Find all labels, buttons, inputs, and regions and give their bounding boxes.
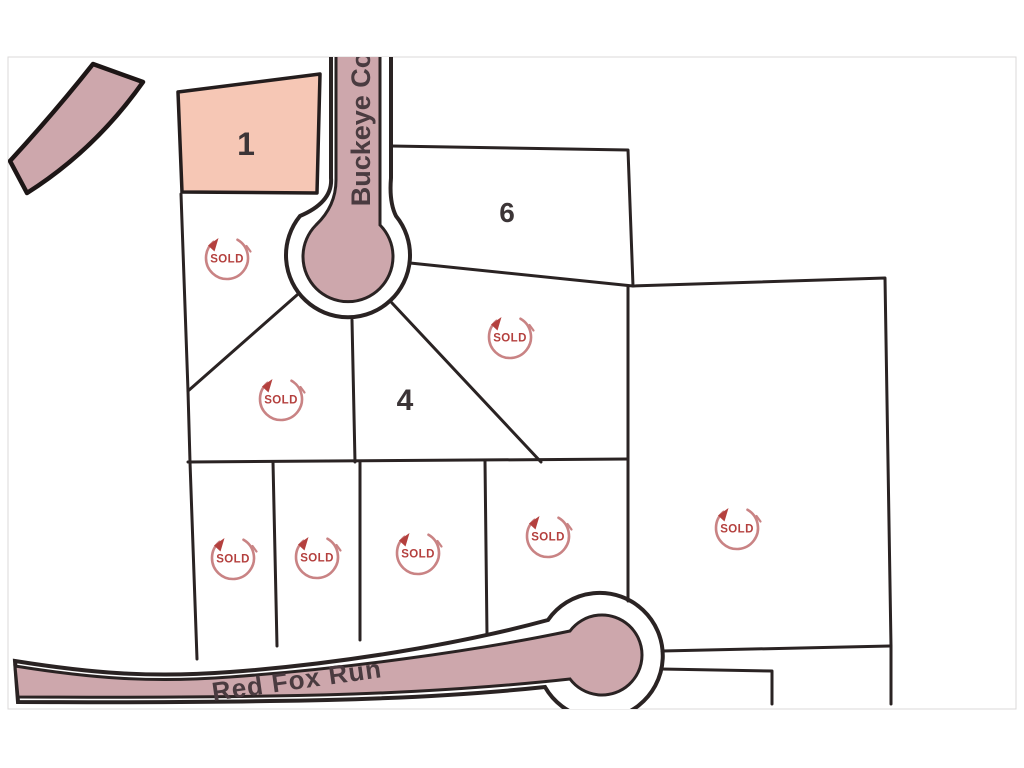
photo-frame bbox=[8, 57, 1016, 709]
boundary-row-divider-3 bbox=[485, 461, 487, 635]
lot-number-1: 1 bbox=[237, 126, 255, 162]
road-label-buckeye: Buckeye Co bbox=[346, 52, 376, 207]
plat-map: SOLD 1 6 4 Buckeye Co Re bbox=[0, 0, 1024, 768]
lot-number-4: 4 bbox=[397, 384, 414, 417]
lot-number-6: 6 bbox=[499, 197, 515, 228]
